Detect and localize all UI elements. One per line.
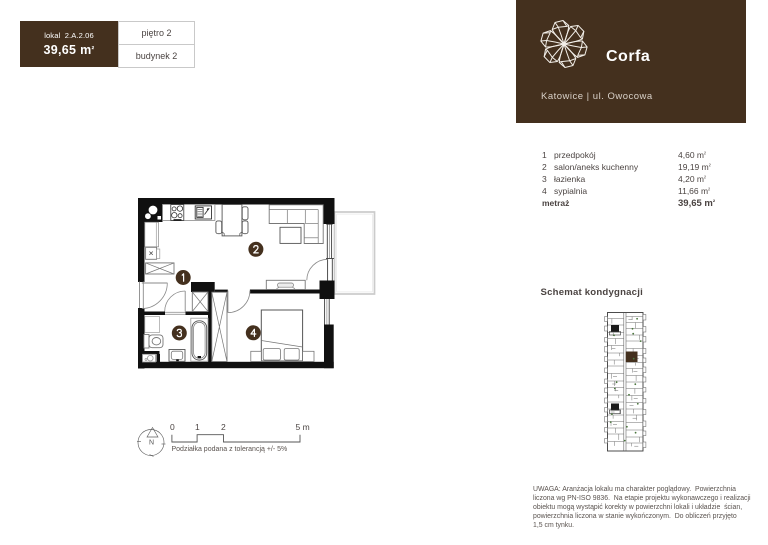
svg-text:N: N — [149, 440, 154, 447]
